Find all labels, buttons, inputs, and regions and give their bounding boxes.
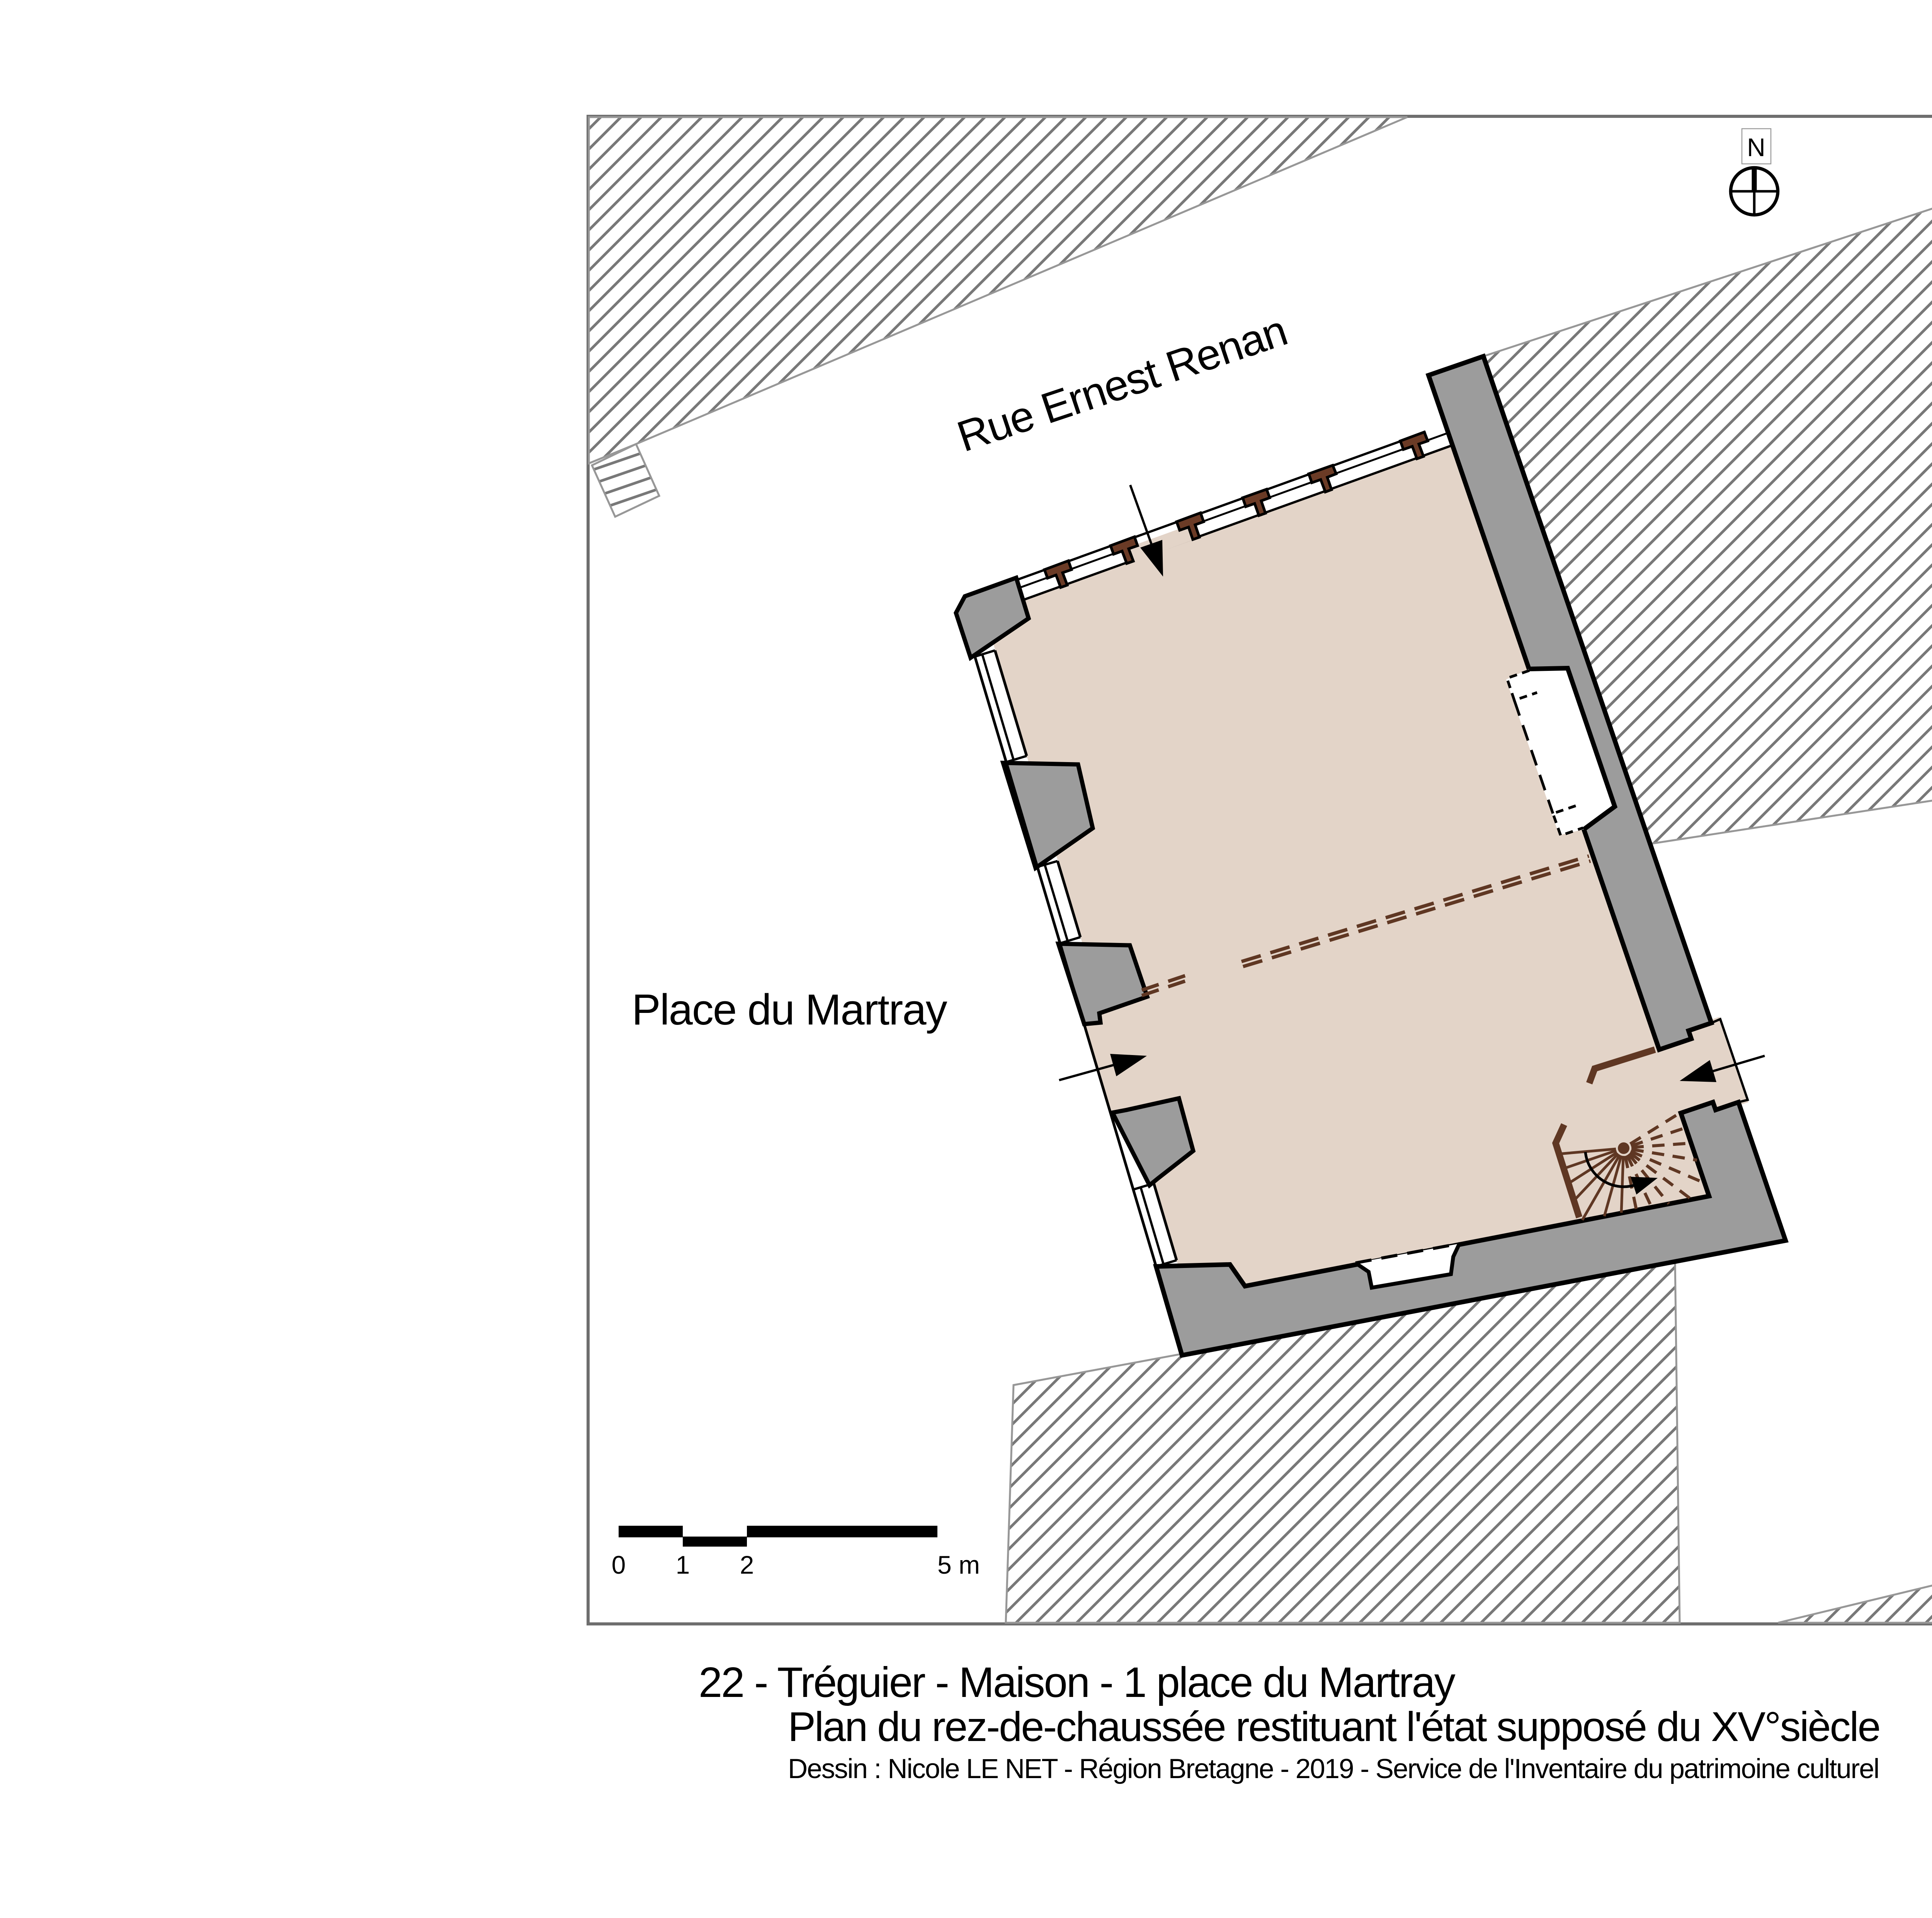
svg-text:22 - Tréguier - Maison - 1 pla: 22 - Tréguier - Maison - 1 place du Mart… (699, 1659, 1456, 1706)
svg-text:0: 0 (612, 1550, 626, 1579)
svg-text:Plan du rez-de-chaussée restit: Plan du rez-de-chaussée restituant l'éta… (788, 1703, 1880, 1750)
svg-text:Place du Martray: Place du Martray (632, 985, 947, 1034)
svg-text:5 m: 5 m (937, 1550, 980, 1579)
svg-text:1: 1 (676, 1550, 690, 1579)
svg-text:Dessin : Nicole LE NET - Régio: Dessin : Nicole LE NET - Région Bretagne… (788, 1754, 1879, 1784)
svg-text:2: 2 (740, 1550, 754, 1579)
svg-text:N: N (1747, 133, 1765, 162)
